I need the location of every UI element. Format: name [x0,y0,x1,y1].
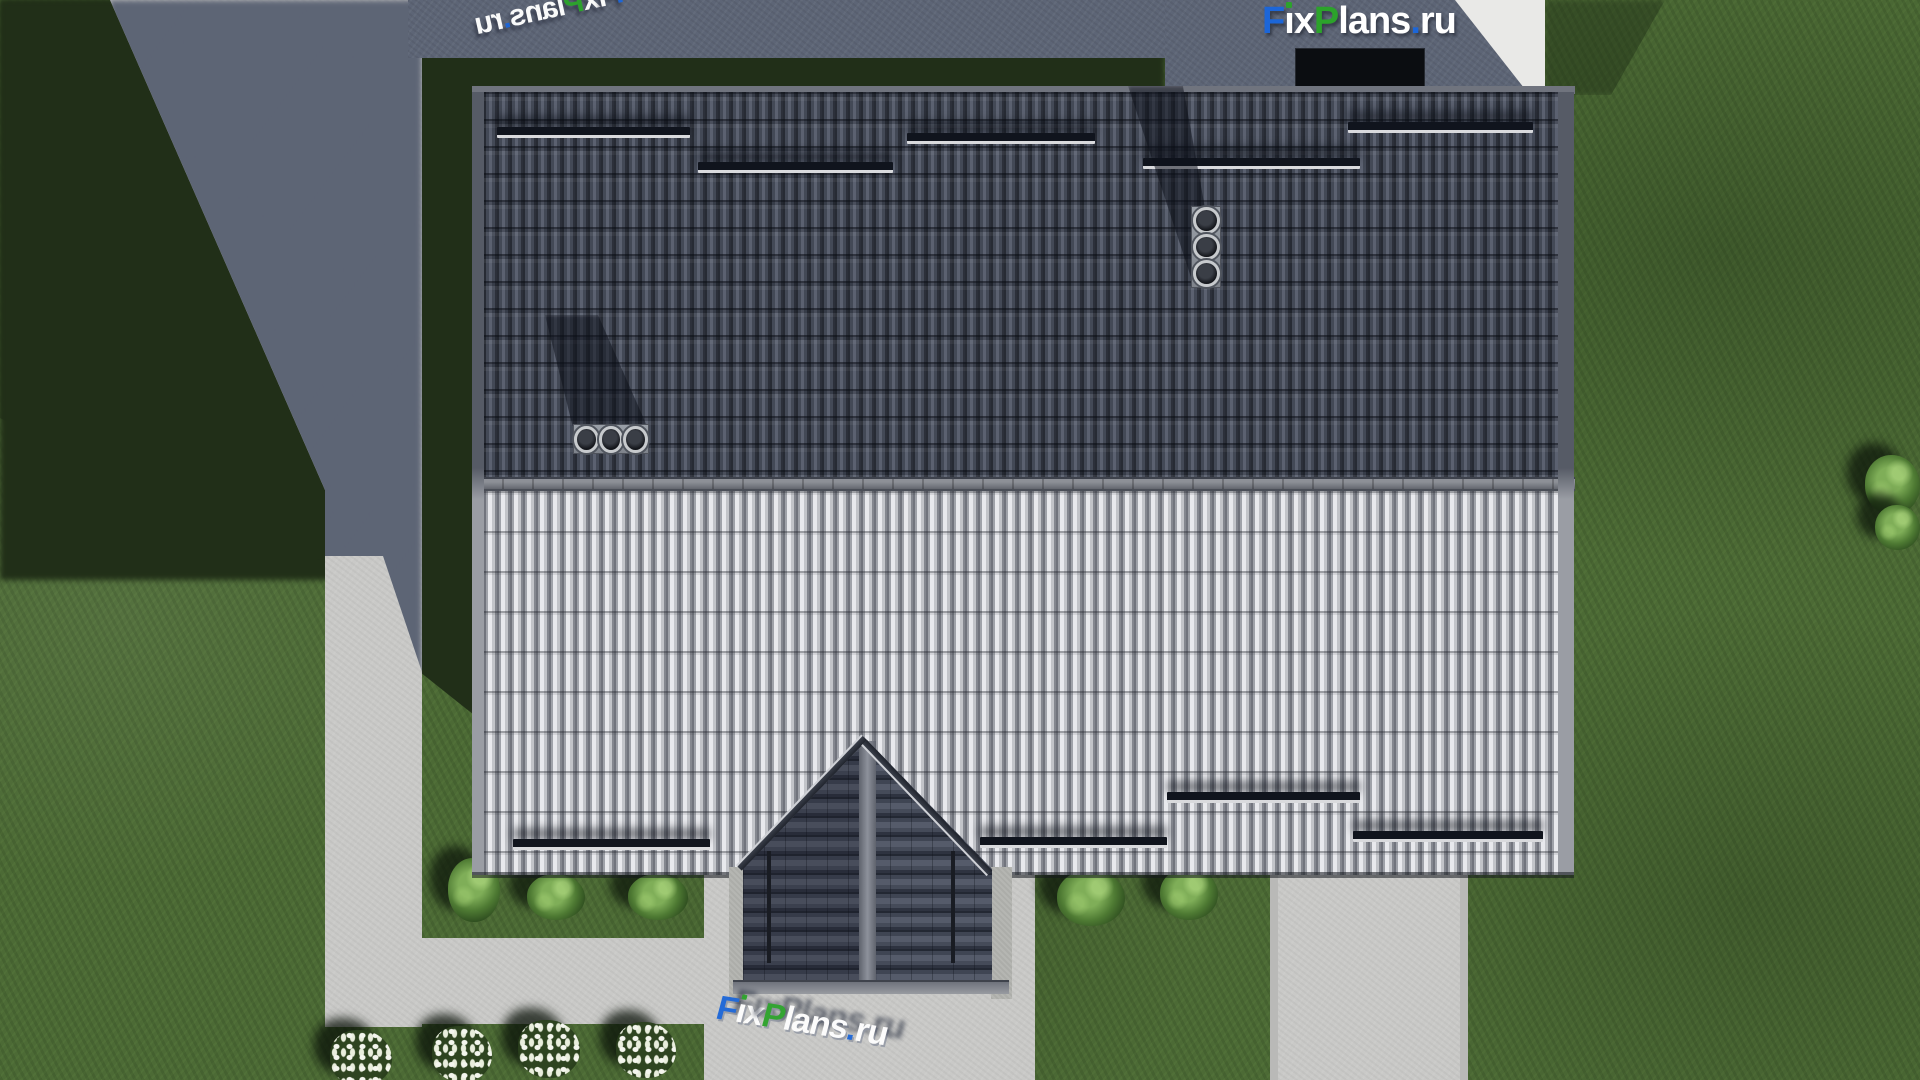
brand-letter: ı [1284,0,1294,43]
brand-letter: ru [1420,0,1456,43]
porch-gutter [733,980,1009,994]
brand-letter: P [1314,0,1338,43]
bottom-walkway [422,938,706,1024]
roof-fascia-left [472,92,484,875]
bush [628,874,688,920]
brand-letter: F [1262,0,1284,43]
roof-eave-shadow [472,872,1574,878]
roof-vent-pipes [1191,206,1221,288]
snow-guard-bar [980,837,1167,848]
vent-pipe-icon [599,426,624,453]
flower-bed [616,1022,676,1078]
brand-letter-dot [1286,2,1292,8]
brand-letter: . [1410,0,1420,43]
porch-downpipe-left [767,851,771,963]
snow-guard-bar [1348,122,1533,133]
vent-pipe-icon [574,426,599,453]
vent-pipe-icon [1193,207,1220,234]
bush [527,874,585,920]
snow-guard-bar [907,133,1095,144]
brand-letter: lans [1338,0,1410,43]
roof-upper-slope [484,92,1558,477]
patio-skylight [1295,48,1425,90]
brand-letter-dot [741,994,748,1000]
flower-bed [518,1020,580,1078]
snow-guard-bar [1353,831,1543,842]
porch-ridge [859,741,876,988]
brand-letter: x [1294,0,1314,43]
shrub-right-edge2 [1875,505,1920,550]
vent-pipe-icon [623,426,648,453]
aerial-house-render: FıxPlans.ru FıxPlans.ru FıxPlans.ru [0,0,1920,1080]
fixplans-logo: FıxPlans.ru [1262,0,1456,43]
vent-pipe-icon [1193,234,1220,261]
flower-bed [432,1026,492,1080]
snow-guard-bar [1167,792,1360,803]
roof-fascia-right [1558,92,1574,875]
roof-ridge [472,477,1575,491]
right-path [1270,875,1468,1080]
snow-guard-bar [513,839,710,850]
snow-guard-bar [698,162,893,173]
porch-downpipe-right [951,851,955,963]
roof-vent-pipes [573,424,649,454]
roof-lower-slope [484,491,1558,875]
snow-guard-bar [497,127,690,138]
vent-pipe-icon [1193,260,1220,287]
bush [1057,870,1125,926]
